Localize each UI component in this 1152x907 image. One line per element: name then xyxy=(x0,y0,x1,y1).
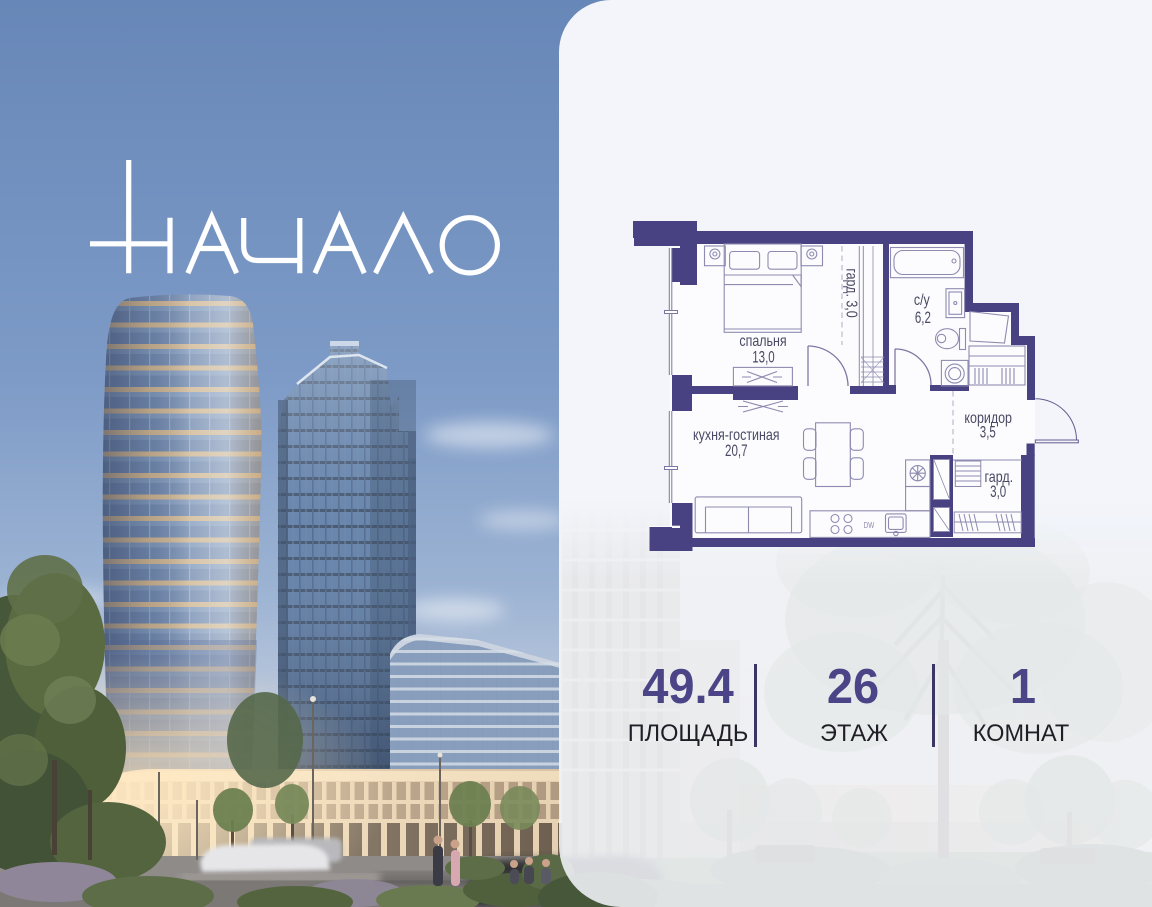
svg-text:6,2: 6,2 xyxy=(915,309,931,328)
svg-text:с/у: с/у xyxy=(914,292,931,310)
svg-text:13,0: 13,0 xyxy=(752,349,775,368)
svg-text:3,0: 3,0 xyxy=(990,483,1006,502)
svg-text:DW: DW xyxy=(864,520,875,530)
svg-text:3,5: 3,5 xyxy=(980,424,996,443)
svg-text:20,7: 20,7 xyxy=(725,442,748,461)
svg-text:гард. 3,0: гард. 3,0 xyxy=(842,268,860,317)
